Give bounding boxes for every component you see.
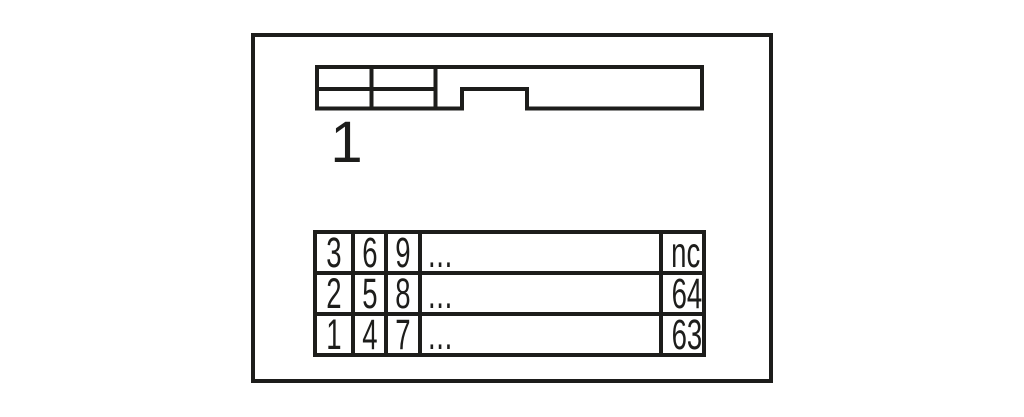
pin-cell: 63 bbox=[661, 314, 704, 355]
pin-cell: nc bbox=[661, 232, 704, 273]
pin-number: nc bbox=[671, 237, 700, 270]
pin-row-top: 3 6 9 ... nc bbox=[315, 232, 704, 273]
pin-cell: 64 bbox=[661, 273, 704, 314]
pin-number: 7 bbox=[395, 319, 410, 352]
pin-number: 2 bbox=[326, 278, 341, 311]
pin-1-label: 1 bbox=[330, 114, 363, 172]
pin-number: 5 bbox=[362, 278, 377, 311]
pin-cell: 5 bbox=[353, 273, 386, 314]
pin-number: 1 bbox=[326, 319, 341, 352]
pin-cell: 4 bbox=[353, 314, 386, 355]
pin-cell: 9 bbox=[386, 232, 420, 273]
pin-cell: 2 bbox=[315, 273, 353, 314]
diagram-canvas: 1 3 6 9 ... nc 2 5 8 ... 64 bbox=[0, 0, 1024, 417]
pin-row-bottom: 1 4 7 ... 63 bbox=[315, 314, 704, 355]
pin-row-middle: 2 5 8 ... 64 bbox=[315, 273, 704, 314]
pin-number: 3 bbox=[326, 237, 341, 270]
pin-cell: 6 bbox=[353, 232, 386, 273]
ellipsis-text: ... bbox=[428, 237, 453, 270]
pin-continuation-cell: ... bbox=[420, 232, 661, 273]
pin-number: 9 bbox=[395, 237, 410, 270]
ellipsis-text: ... bbox=[428, 319, 453, 352]
pin-number: 63 bbox=[672, 319, 703, 352]
pin-cell: 3 bbox=[315, 232, 353, 273]
pin-cell: 7 bbox=[386, 314, 420, 355]
pin-number: 6 bbox=[362, 237, 377, 270]
pin-continuation-cell: ... bbox=[420, 314, 661, 355]
pin-continuation-cell: ... bbox=[420, 273, 661, 314]
ellipsis-text: ... bbox=[428, 278, 453, 311]
pin-number: 8 bbox=[395, 278, 410, 311]
pin-cell: 1 bbox=[315, 314, 353, 355]
pin-assignment-table: 3 6 9 ... nc 2 5 8 ... 64 1 4 7 ... 63 bbox=[313, 230, 706, 357]
connector-symbol bbox=[313, 63, 705, 113]
pin-number: 4 bbox=[362, 319, 377, 352]
pin-cell: 8 bbox=[386, 273, 420, 314]
pin-number: 64 bbox=[672, 278, 703, 311]
